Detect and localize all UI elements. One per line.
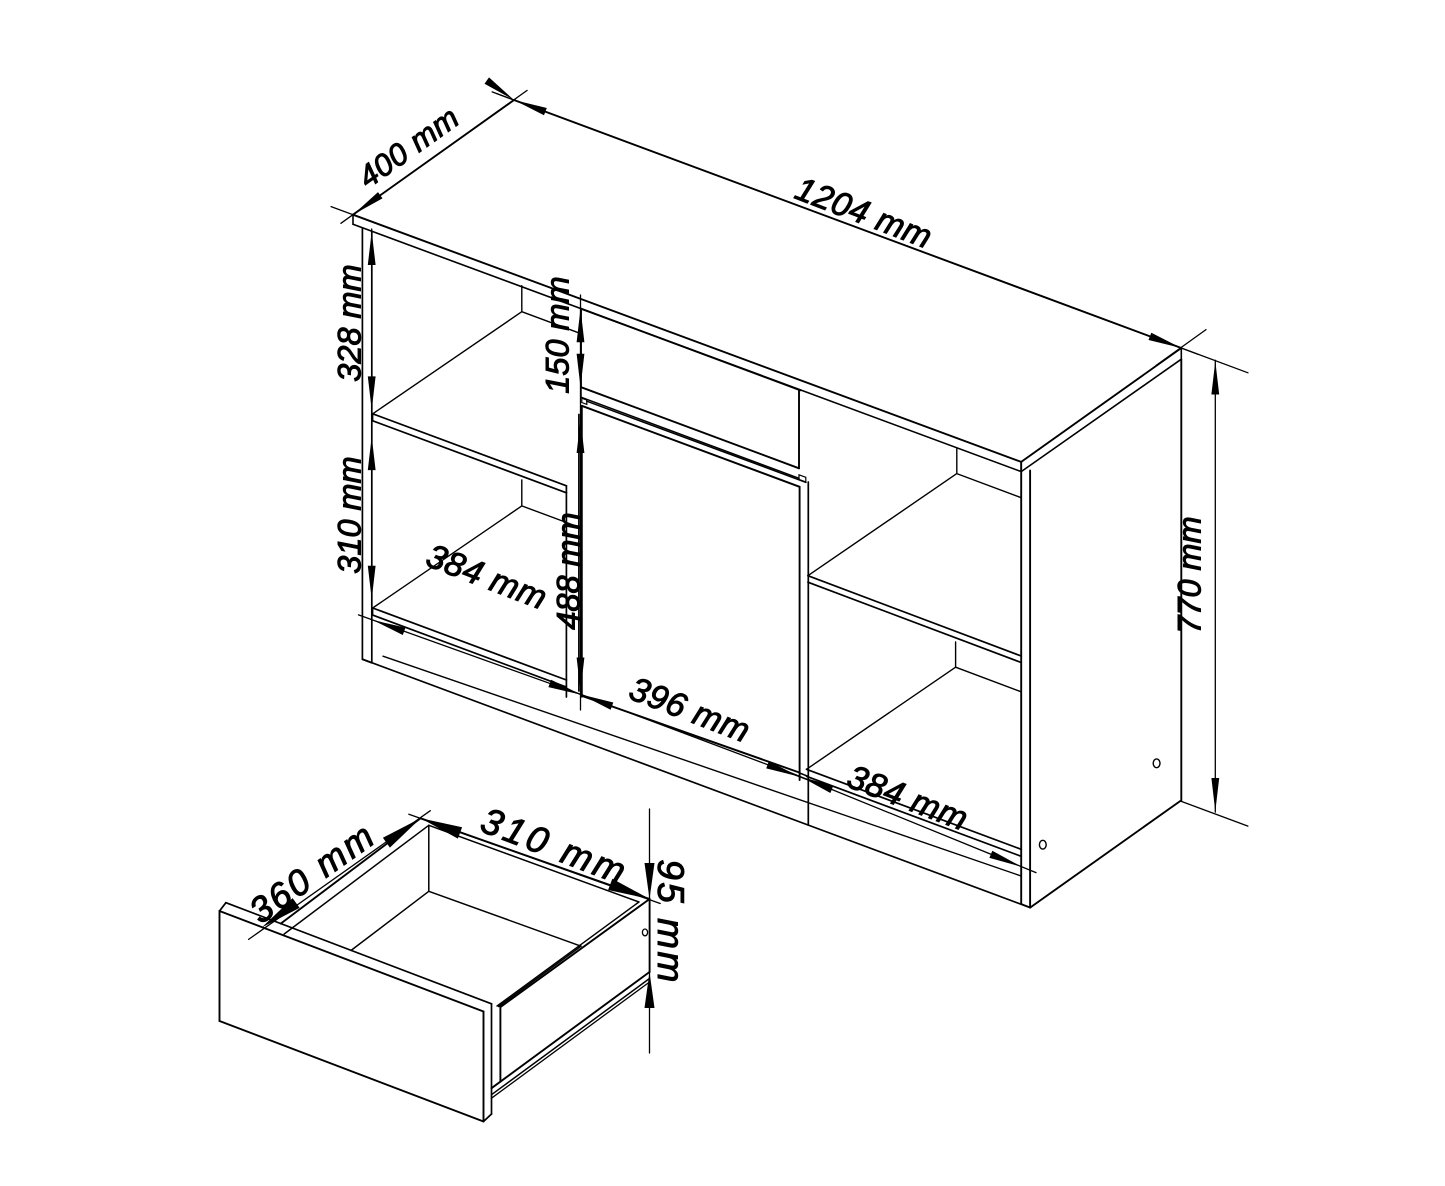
- svg-text:95 mm: 95 mm: [650, 859, 691, 985]
- svg-text:310 mm: 310 mm: [332, 456, 368, 573]
- svg-text:770 mm: 770 mm: [1172, 516, 1208, 633]
- svg-text:328 mm: 328 mm: [332, 264, 368, 381]
- svg-text:150 mm: 150 mm: [540, 276, 576, 393]
- svg-text:488 mm: 488 mm: [551, 512, 587, 629]
